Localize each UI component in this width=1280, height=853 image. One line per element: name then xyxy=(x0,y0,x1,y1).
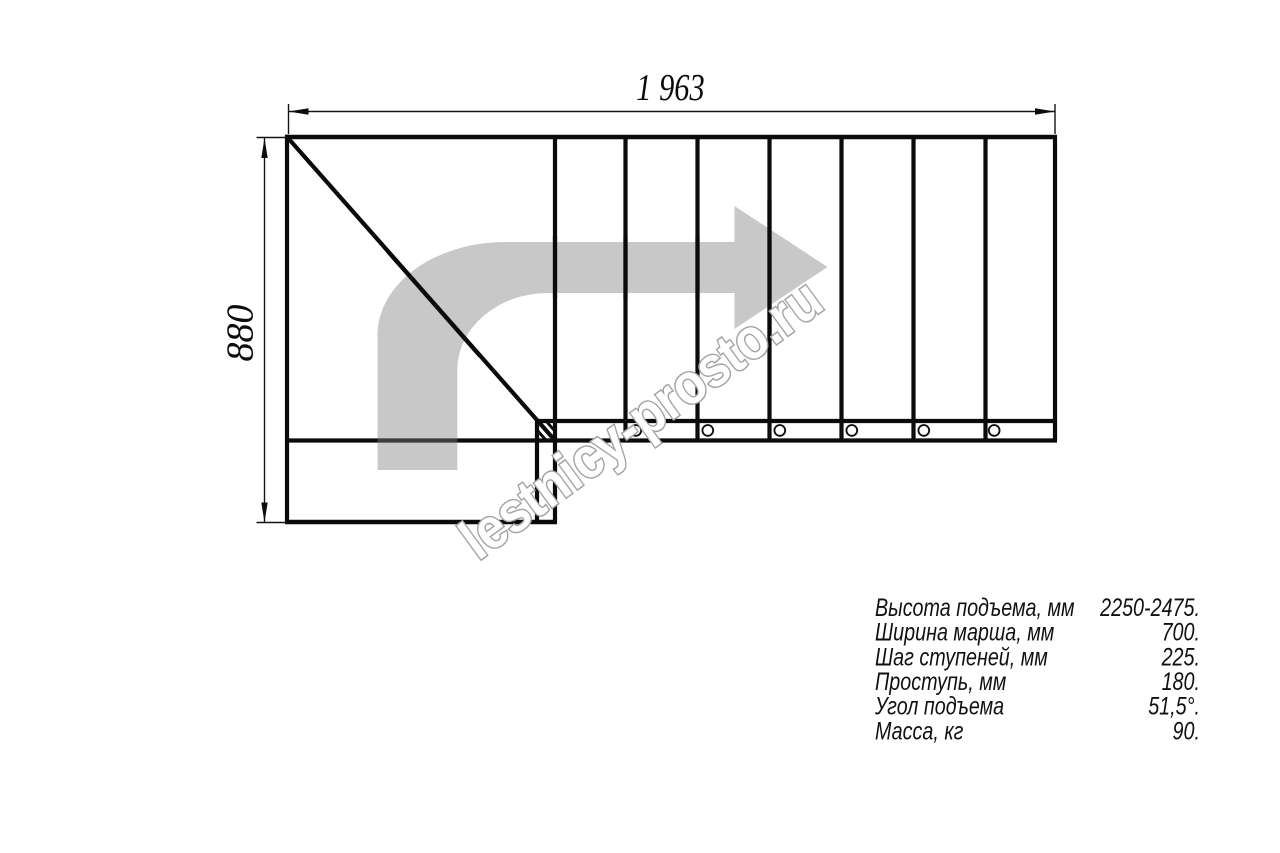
svg-text:51,5°.: 51,5°. xyxy=(1148,693,1200,721)
svg-text:700.: 700. xyxy=(1162,619,1200,647)
svg-text:880: 880 xyxy=(220,305,262,362)
svg-text:90.: 90. xyxy=(1173,717,1200,745)
svg-text:Угол подъема: Угол подъема xyxy=(874,693,1004,721)
svg-text:Ширина марша, мм: Ширина марша, мм xyxy=(875,619,1054,647)
svg-text:225.: 225. xyxy=(1161,643,1200,671)
svg-text:180.: 180. xyxy=(1162,668,1200,696)
svg-text:1 963: 1 963 xyxy=(636,67,704,109)
svg-text:Проступь, мм: Проступь, мм xyxy=(875,668,1006,696)
svg-text:Шаг ступеней, мм: Шаг ступеней, мм xyxy=(875,643,1048,671)
svg-text:Высота подъема, мм: Высота подъема, мм xyxy=(875,594,1075,622)
svg-text:Масса, кг: Масса, кг xyxy=(875,717,963,745)
svg-text:2250-2475.: 2250-2475. xyxy=(1099,594,1200,622)
